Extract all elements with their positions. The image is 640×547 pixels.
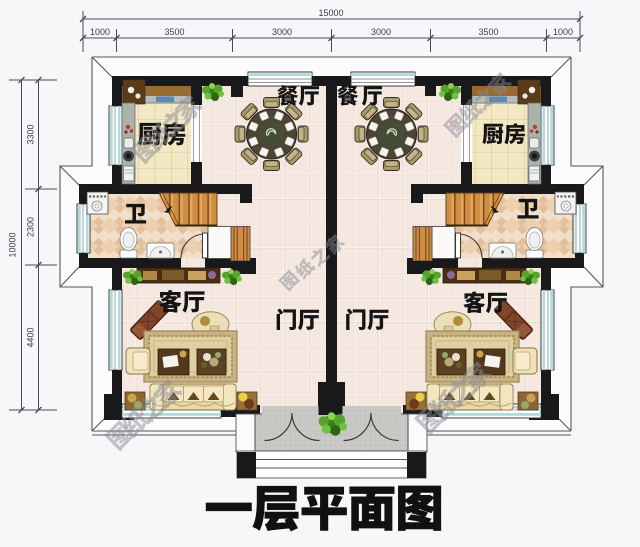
svg-text:3500: 3500 [164, 27, 184, 37]
svg-text:3500: 3500 [478, 27, 498, 37]
svg-text:1000: 1000 [90, 27, 110, 37]
svg-text:3000: 3000 [371, 27, 391, 37]
svg-text:10000: 10000 [8, 232, 18, 257]
svg-text:4400: 4400 [26, 327, 36, 347]
svg-text:1000: 1000 [553, 27, 573, 37]
svg-text:3000: 3000 [272, 27, 292, 37]
svg-text:3300: 3300 [26, 124, 36, 144]
svg-text:15000: 15000 [318, 8, 343, 18]
svg-text:2300: 2300 [26, 217, 36, 237]
